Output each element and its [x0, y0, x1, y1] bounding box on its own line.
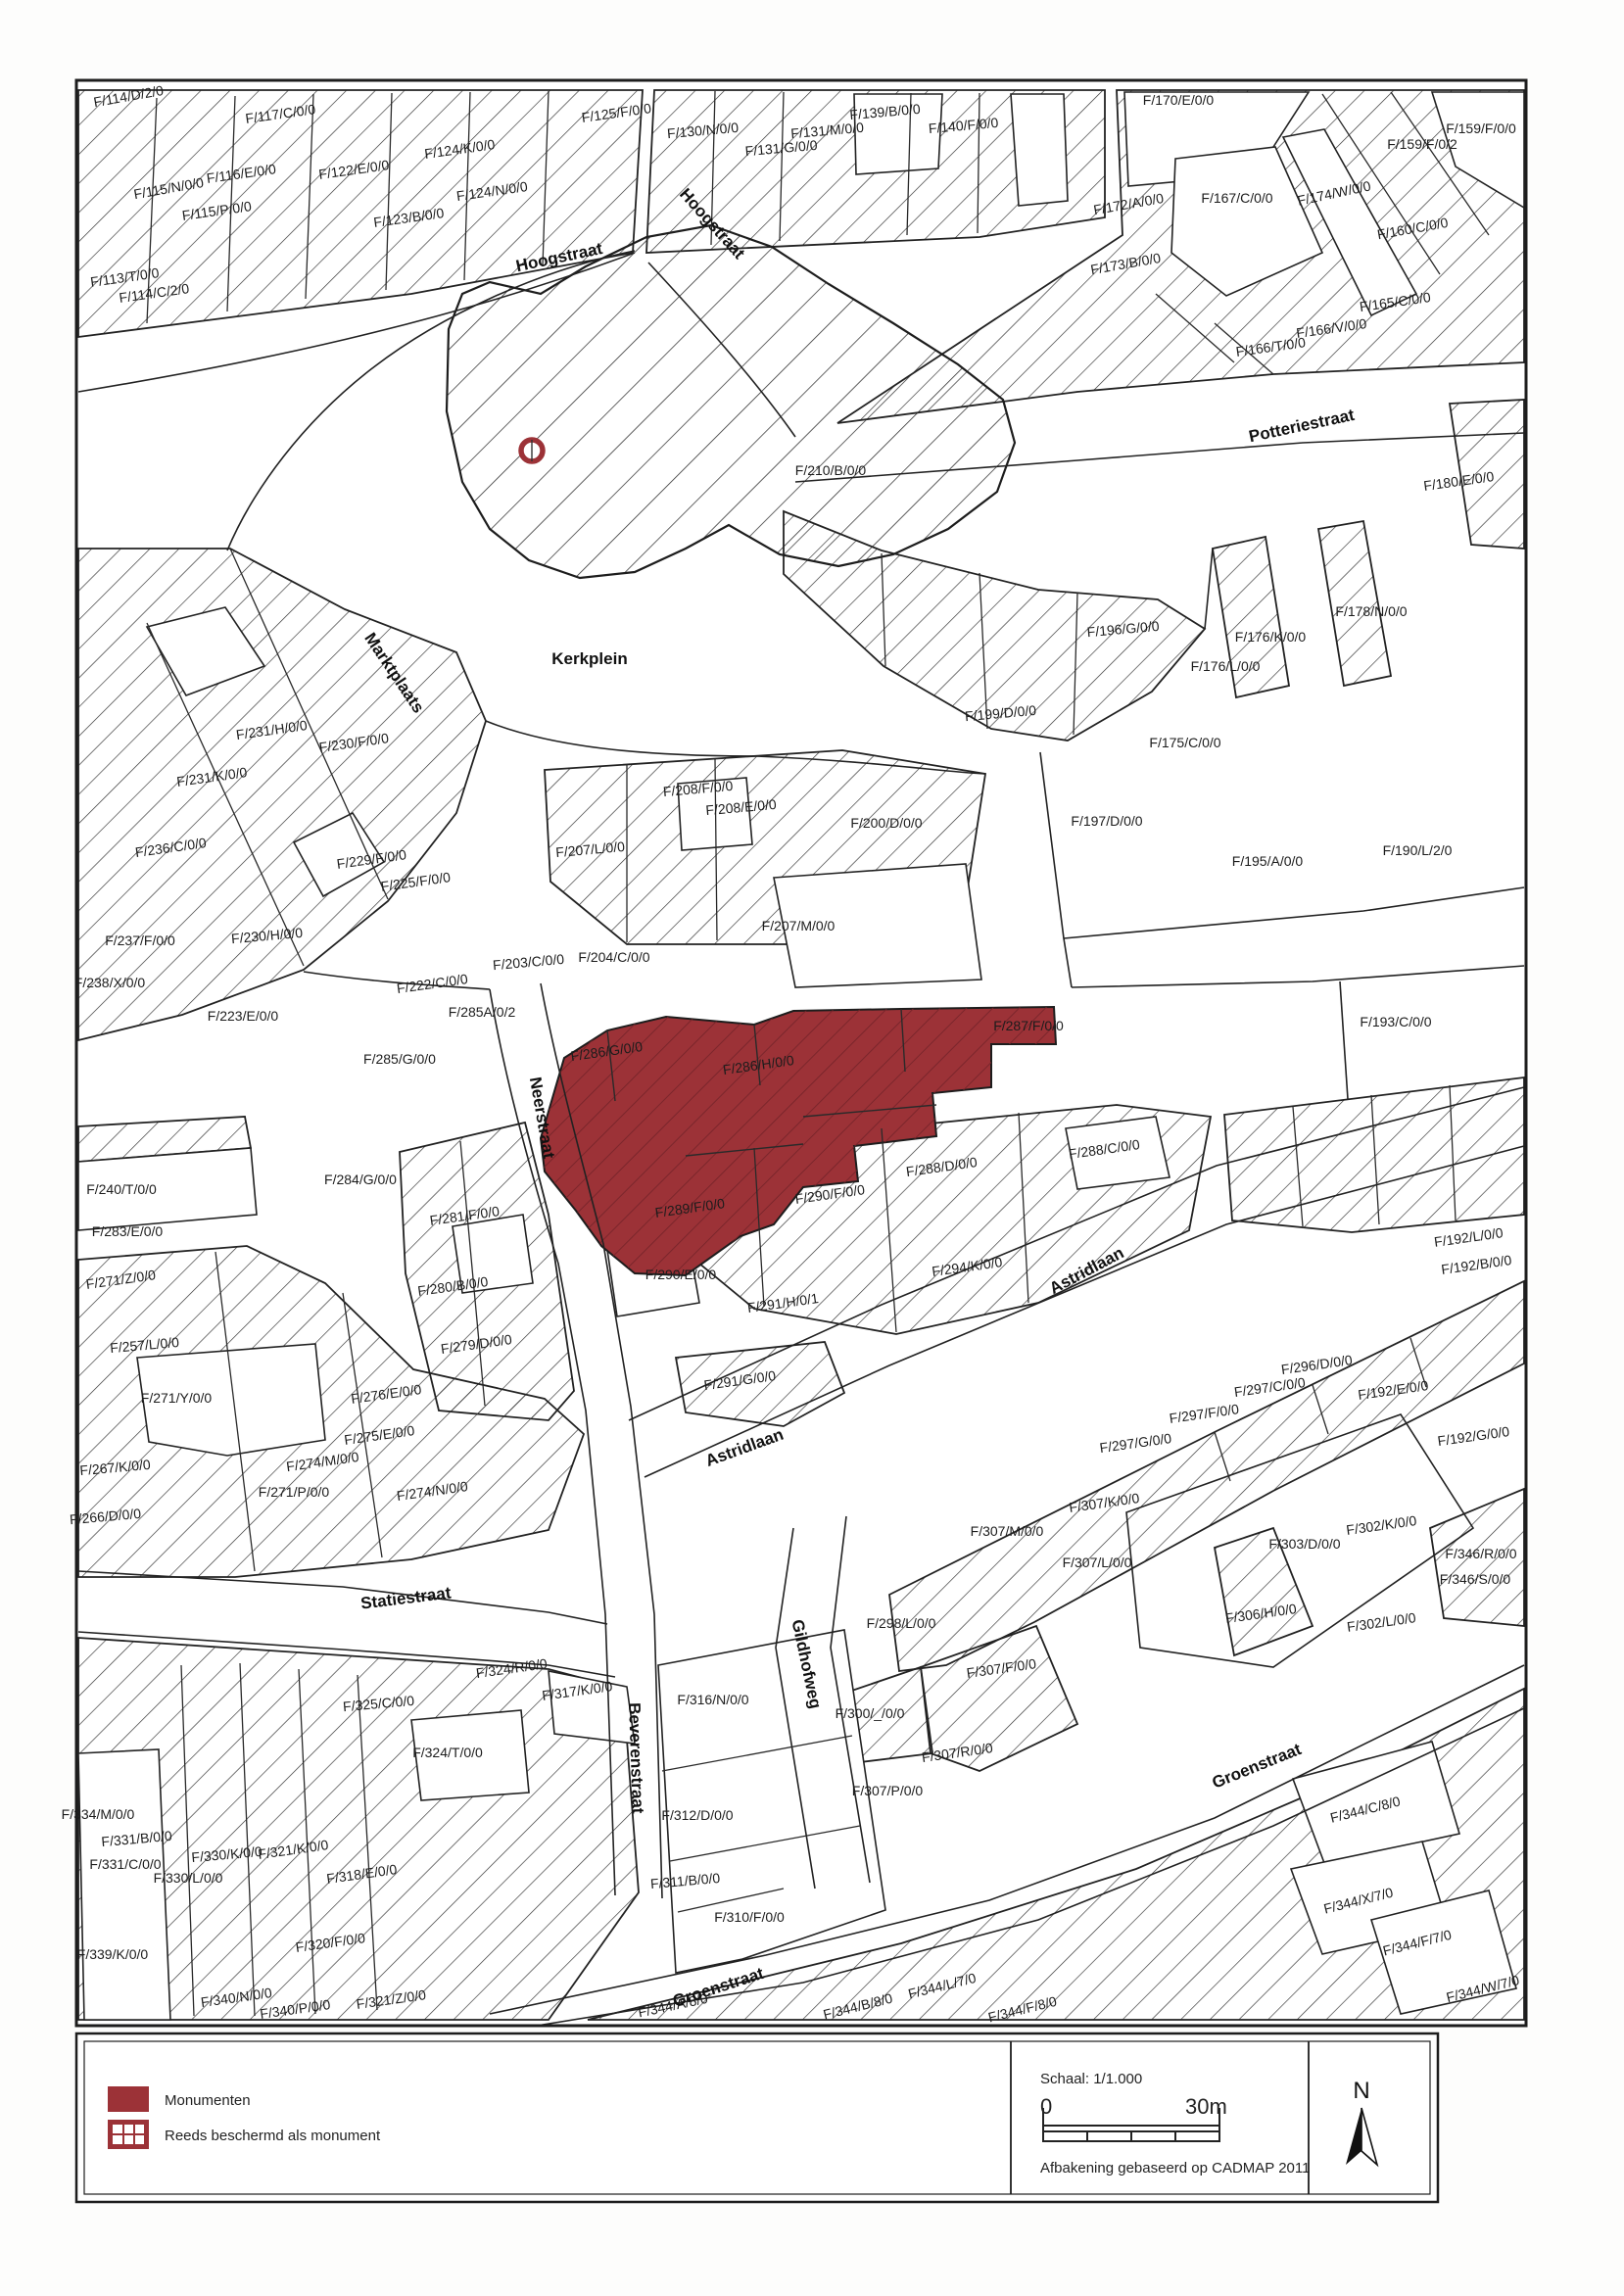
parcel-label: F/346/S/0/0	[1440, 1571, 1511, 1587]
parcel-label: F/197/D/0/0	[1071, 813, 1142, 829]
parcel-label: F/271/P/0/0	[259, 1484, 330, 1500]
parcel-label: F/284/G/0/0	[324, 1172, 397, 1187]
cadastral-map-page: F/114/D/2/0F/117/C/0/0F/116/E/0/0F/115/N…	[0, 0, 1624, 2296]
parcel-label: F/159/F/0/2	[1387, 136, 1457, 152]
parcel-label: F/300/_/0/0	[836, 1705, 905, 1721]
scale-note: Afbakening gebaseerd op CADMAP 2011	[1040, 2160, 1310, 2176]
parcel-label: F/307/L/0/0	[1063, 1555, 1132, 1570]
parcel-label: F/331/C/0/0	[89, 1856, 161, 1872]
north-label: N	[1353, 2078, 1369, 2104]
parcel-label: F/312/D/0/0	[661, 1807, 733, 1823]
parcel-label: F/310/F/0/0	[714, 1909, 785, 1925]
legend-box: Monumenten Reeds beschermd als monument …	[76, 2033, 1438, 2202]
parcel-label: F/240/T/0/0	[86, 1181, 157, 1197]
cadastral-map: F/114/D/2/0F/117/C/0/0F/116/E/0/0F/115/N…	[0, 0, 1624, 2296]
street-label: Beverenstraat	[625, 1702, 647, 1814]
parcel-label: F/290/E/0/0	[645, 1267, 717, 1282]
parcel-label: F/178/N/0/0	[1335, 603, 1407, 619]
legend-label-beschermd: Reeds beschermd als monument	[165, 2128, 381, 2144]
parcel-label: F/237/F/0/0	[105, 933, 175, 948]
street-label: Kerkplein	[551, 649, 627, 668]
parcel-label: F/316/N/0/0	[677, 1692, 748, 1707]
parcel-label: F/190/L/2/0	[1383, 842, 1453, 858]
parcel-label: F/210/B/0/0	[795, 462, 867, 478]
parcel-label: F/159/F/0/0	[1446, 120, 1516, 136]
scale-title: Schaal: 1/1.000	[1040, 2071, 1142, 2087]
parcel-label: F/193/C/0/0	[1360, 1014, 1431, 1029]
parcel-label: F/287/F/0/0	[993, 1018, 1064, 1033]
parcel-label: F/303/D/0/0	[1268, 1536, 1340, 1552]
parcel-label: F/298/L/0/0	[867, 1615, 936, 1631]
legend-swatch-beschermd	[108, 2120, 149, 2149]
parcel-label: F/176/L/0/0	[1191, 658, 1261, 674]
parcel-label: F/204/C/0/0	[578, 949, 649, 965]
parcel-label: F/238/X/0/0	[74, 975, 146, 990]
parcel-label: F/346/R/0/0	[1445, 1546, 1516, 1561]
scale-start: 0	[1040, 2094, 1052, 2119]
scale-end: 30m	[1185, 2094, 1227, 2119]
parcel-label: F/307/P/0/0	[852, 1783, 924, 1798]
parcel-label: F/223/E/0/0	[208, 1008, 279, 1024]
protected-monument-marker	[521, 440, 543, 461]
legend-label-monumenten: Monumenten	[165, 2092, 251, 2109]
parcel-label: F/285/G/0/0	[363, 1051, 436, 1067]
parcel-label: F/307/M/0/0	[971, 1523, 1044, 1539]
parcel-label: F/207/M/0/0	[762, 918, 836, 933]
parcel-label: F/195/A/0/0	[1232, 853, 1304, 869]
parcel-label: F/324/T/0/0	[412, 1745, 483, 1760]
parcel-label: F/330/L/0/0	[154, 1870, 223, 1886]
parcel-label: F/334/M/0/0	[62, 1806, 135, 1822]
parcel-label: F/200/D/0/0	[850, 815, 922, 831]
parcel-label: F/170/E/0/0	[1143, 92, 1215, 108]
parcel-label: F/175/C/0/0	[1149, 735, 1220, 750]
legend-swatch-monumenten	[108, 2086, 149, 2112]
parcel-label: F/176/K/0/0	[1235, 629, 1307, 645]
parcel-label: F/167/C/0/0	[1201, 190, 1272, 206]
parcel-label: F/285A/0/2	[449, 1004, 516, 1020]
parcel-label: F/283/E/0/0	[92, 1223, 164, 1239]
parcel-label: F/339/K/0/0	[77, 1946, 149, 1962]
parcel-label: F/271/Y/0/0	[141, 1390, 213, 1406]
